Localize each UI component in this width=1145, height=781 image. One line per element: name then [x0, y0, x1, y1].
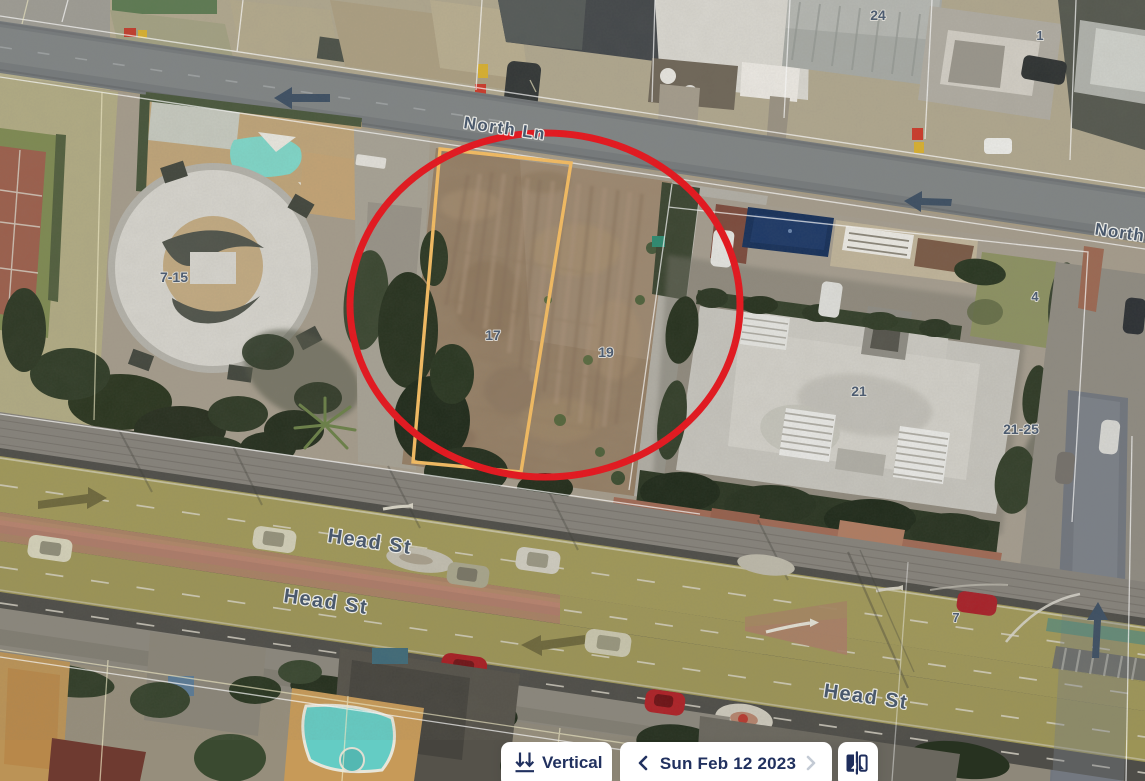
svg-text:Sun Feb 12 2023: Sun Feb 12 2023	[660, 754, 796, 773]
svg-text:Vertical: Vertical	[542, 753, 603, 772]
